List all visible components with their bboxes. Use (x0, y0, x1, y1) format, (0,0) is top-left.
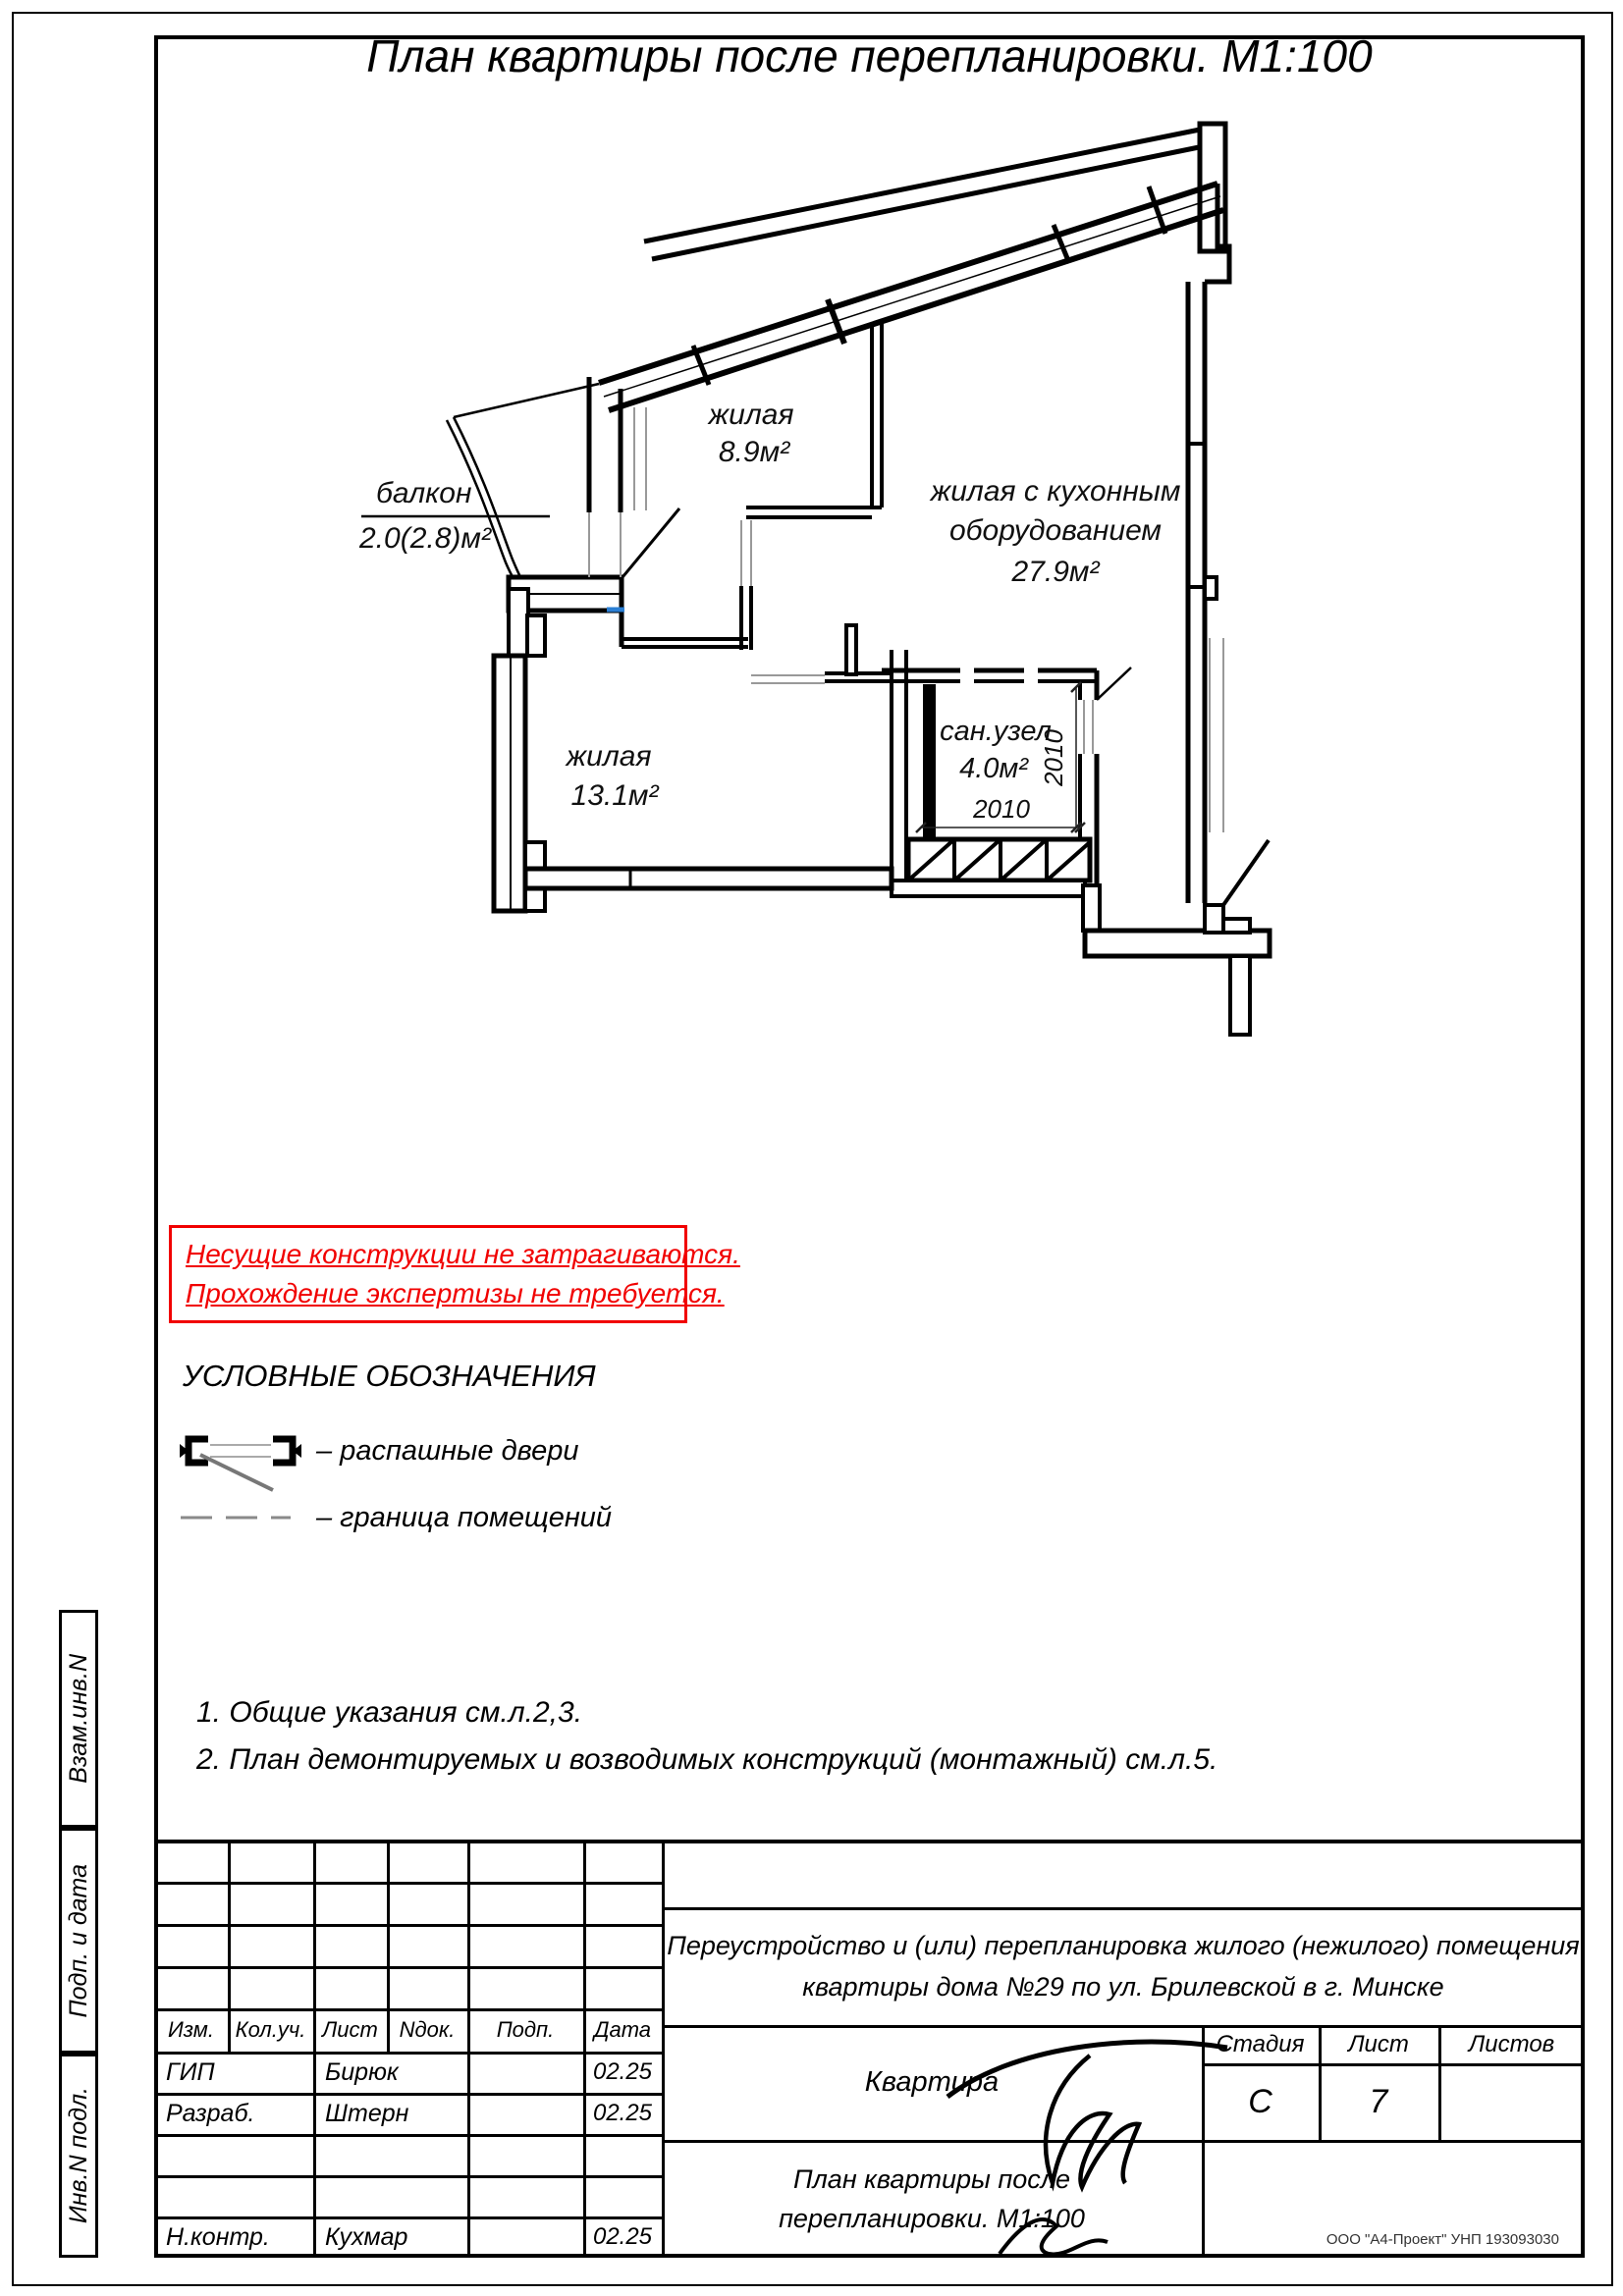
tb-col-list: Лист (313, 2008, 387, 2052)
tb-col-data: Дата (583, 2008, 662, 2052)
sidebar-cell-inv: Инв.N подл. (59, 2054, 98, 2258)
sheet-label: Лист (1319, 2025, 1438, 2063)
sheet-value: 7 (1319, 2063, 1438, 2140)
balcony-area: 2.0(2.8)м² (358, 522, 492, 555)
balcony-door-swing (622, 508, 679, 577)
legend-label-boundary: – граница помещений (316, 1502, 612, 1534)
dashed-line-icon (181, 1510, 298, 1525)
note-2: 2. План демонтируемых и возводимых конст… (196, 1743, 1217, 1777)
san-door-swing (1097, 667, 1131, 700)
project-title-line1: Переустройство и (или) перепланировка жи… (667, 1925, 1579, 1966)
sidebar-cell-podp: Подп. и дата (59, 1828, 98, 2054)
tb-date-gip: 02.25 (583, 2052, 662, 2093)
dimension-horizontal: 2010 (972, 794, 1030, 824)
sheets-label: Листов (1438, 2025, 1585, 2063)
titleblock-line (154, 2134, 662, 2137)
tb-date-nkontr: 02.25 (583, 2216, 662, 2258)
room-area-8-9: 8.9м² (719, 436, 790, 468)
balcony-label: балкон (376, 477, 472, 509)
note-1: 1. Общие указания см.л.2,3. (196, 1696, 582, 1730)
org-name: ООО "А4-Проект" УНП 193093030 (1202, 2140, 1573, 2256)
dimension-lines (361, 516, 1085, 832)
tb-col-ndok: Nдок. (387, 2008, 467, 2052)
titleblock-line (154, 1966, 662, 1969)
project-title-line2: квартиры дома №29 по ул. Брилевской в г.… (802, 1966, 1443, 2007)
sidebar-label-inv: Инв.N подл. (65, 2087, 93, 2223)
titleblock-line (154, 2175, 662, 2178)
swing-door-icon (179, 1421, 308, 1492)
room-label-sanuzel: сан.узел (940, 716, 1052, 747)
sidebar-cell-vzam: Взам.инв.N (59, 1610, 98, 1828)
object-name: Квартира (662, 2025, 1202, 2140)
sheet-title: План квартиры после перепланировки. М1:1… (154, 29, 1585, 82)
room-label-zhilaya-13-1: жилая (565, 740, 652, 773)
titleblock-line (154, 1882, 662, 1885)
warning-box: Несущие конструкции не затрагиваются. Пр… (169, 1225, 687, 1323)
drawing-title-line2: перепланировки. М1:100 (779, 2199, 1085, 2238)
room-area-27-9: 27.9м² (1011, 556, 1101, 588)
room-area-13-1: 13.1м² (571, 779, 660, 812)
sheets-value (1438, 2063, 1585, 2140)
legend-label-doors: – распашные двери (316, 1435, 579, 1468)
hatched-wall (908, 839, 1090, 881)
room-label-kitchen-2: оборудованием (949, 514, 1162, 547)
drawing-title-line1: План квартиры после (793, 2160, 1070, 2199)
stage-value: С (1202, 2063, 1319, 2140)
room-label-zhilaya-8-9: жилая (707, 399, 794, 431)
legend-heading: УСЛОВНЫЕ ОБОЗНАЧЕНИЯ (183, 1359, 596, 1394)
warning-line-1: Несущие конструкции не затрагиваются. (186, 1235, 684, 1274)
tb-name-gip: Бирюк (325, 2052, 467, 2093)
floor-plan: жилая 8.9м² жилая с кухонным оборудовани… (295, 98, 1375, 1060)
warning-line-2: Прохождение экспертизы не требуется. (186, 1274, 684, 1313)
tb-name-nkontr: Кухмар (325, 2216, 467, 2258)
drawing-sheet: План квартиры после перепланировки. М1:1… (0, 0, 1623, 2296)
tb-role-razrab: Разраб. (166, 2093, 313, 2134)
room-label-kitchen-1: жилая с кухонным (929, 475, 1181, 507)
room-area-sanuzel: 4.0м² (959, 753, 1029, 784)
tb-col-podp: Подп. (467, 2008, 583, 2052)
tb-col-koluch: Кол.уч. (228, 2008, 313, 2052)
tb-date-razrab: 02.25 (583, 2093, 662, 2134)
sidebar-label-vzam: Взам.инв.N (65, 1654, 93, 1784)
new-wall (923, 684, 936, 839)
dimension-vertical: 2010 (1039, 729, 1068, 787)
tb-role-gip: ГИП (166, 2052, 313, 2093)
entry-door-swing (1223, 840, 1269, 905)
titleblock-line (154, 1924, 662, 1927)
tb-name-razrab: Штерн (325, 2093, 467, 2134)
tb-col-izm: Изм. (154, 2008, 228, 2052)
stage-label: Стадия (1202, 2025, 1319, 2063)
sidebar-label-podp: Подп. и дата (65, 1864, 93, 2018)
tb-role-nkontr: Н.контр. (166, 2216, 313, 2258)
plan-walls (447, 124, 1270, 1035)
